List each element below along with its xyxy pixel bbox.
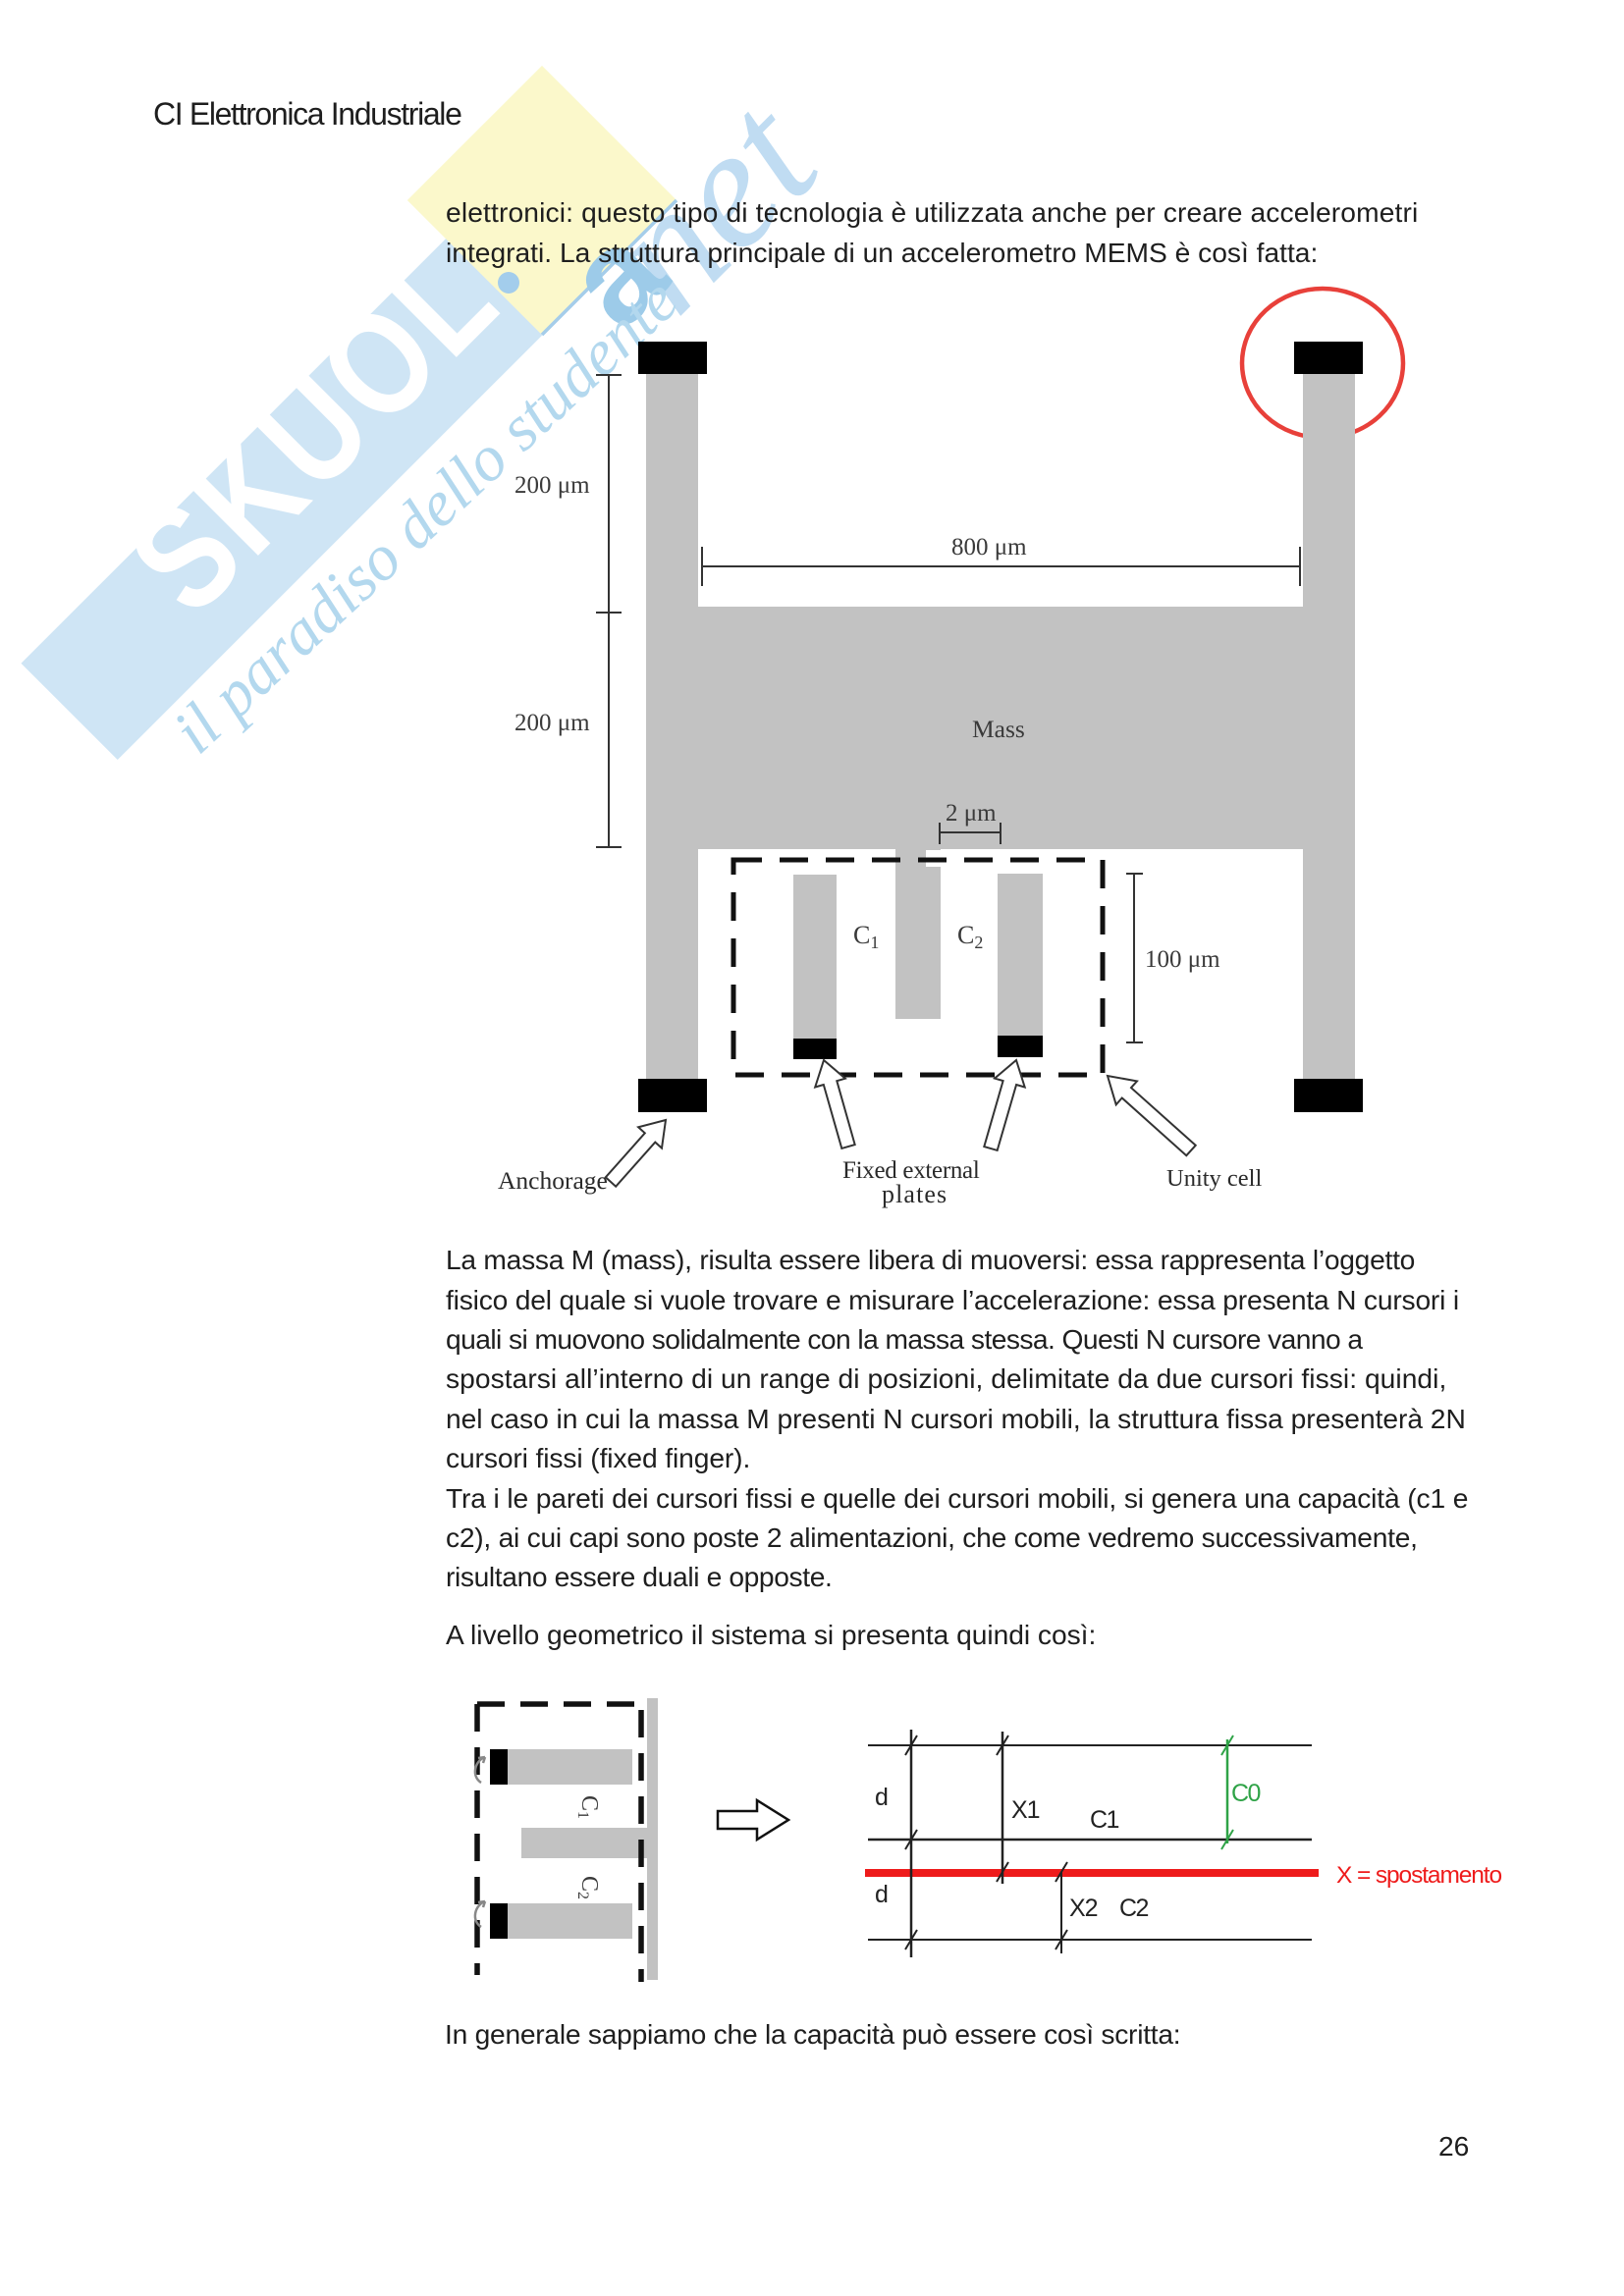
svg-text:d: d (875, 1881, 889, 1908)
svg-text:X = spostamento: X = spostamento (1336, 1862, 1502, 1889)
svg-text:Anchorage: Anchorage (498, 1166, 608, 1195)
svg-text:C1: C1 (574, 1795, 602, 1819)
svg-text:800 μm: 800 μm (951, 534, 1027, 561)
svg-text:C1: C1 (1090, 1806, 1119, 1834)
svg-text:d: d (875, 1784, 889, 1811)
svg-text:X2: X2 (1069, 1895, 1098, 1922)
svg-text:200 μm: 200 μm (514, 710, 590, 736)
svg-text:Mass: Mass (972, 715, 1025, 743)
svg-text:Unity cell: Unity cell (1166, 1165, 1262, 1192)
svg-text:plates: plates (882, 1180, 947, 1208)
svg-text:C0: C0 (1231, 1780, 1261, 1807)
svg-text:X1: X1 (1011, 1796, 1040, 1824)
svg-text:2 μm: 2 μm (946, 800, 997, 827)
svg-text:C2: C2 (574, 1876, 602, 1899)
svg-text:200 μm: 200 μm (514, 472, 590, 499)
svg-text:100 μm: 100 μm (1145, 946, 1220, 973)
svg-text:C2: C2 (1119, 1895, 1149, 1922)
svg-text:C2: C2 (957, 921, 983, 952)
svg-text:C1: C1 (853, 921, 879, 952)
